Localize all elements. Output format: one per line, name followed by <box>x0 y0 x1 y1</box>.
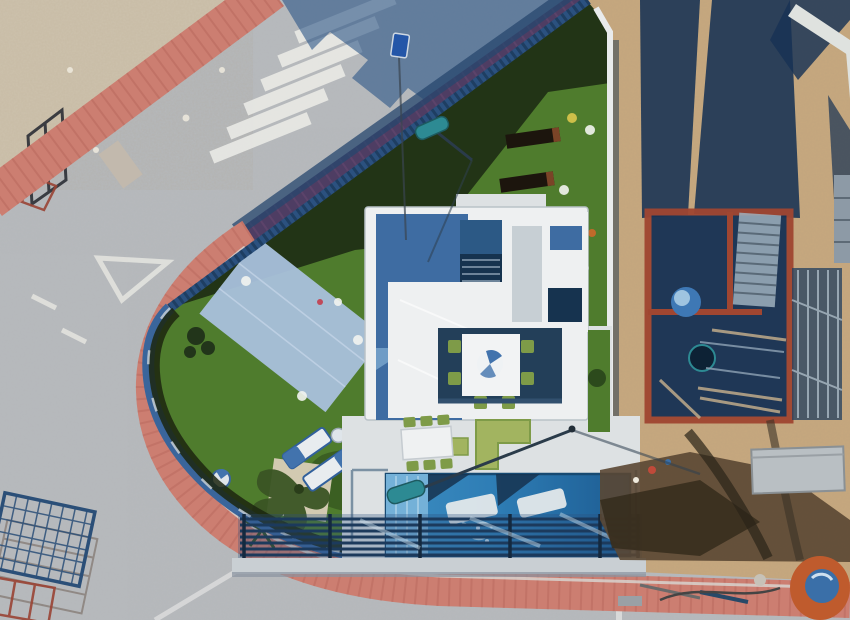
roof-left-blue <box>376 214 468 288</box>
basin <box>689 345 715 371</box>
slatted-fence-bottom <box>232 514 646 577</box>
side-tree <box>588 369 606 387</box>
scaffolding <box>792 268 842 420</box>
gray-wall-piece <box>751 446 844 493</box>
aerial-photo <box>0 0 850 620</box>
wing-panel <box>512 226 542 322</box>
brick-building <box>648 212 790 420</box>
wing-door <box>548 288 582 322</box>
construction-stairs <box>733 213 781 308</box>
wing-blue <box>550 226 582 250</box>
stair-landing <box>460 220 502 254</box>
block-pallets <box>834 175 850 263</box>
low-wall <box>232 558 646 574</box>
concrete-mixer <box>790 556 850 620</box>
lower-dining-set <box>400 414 454 471</box>
